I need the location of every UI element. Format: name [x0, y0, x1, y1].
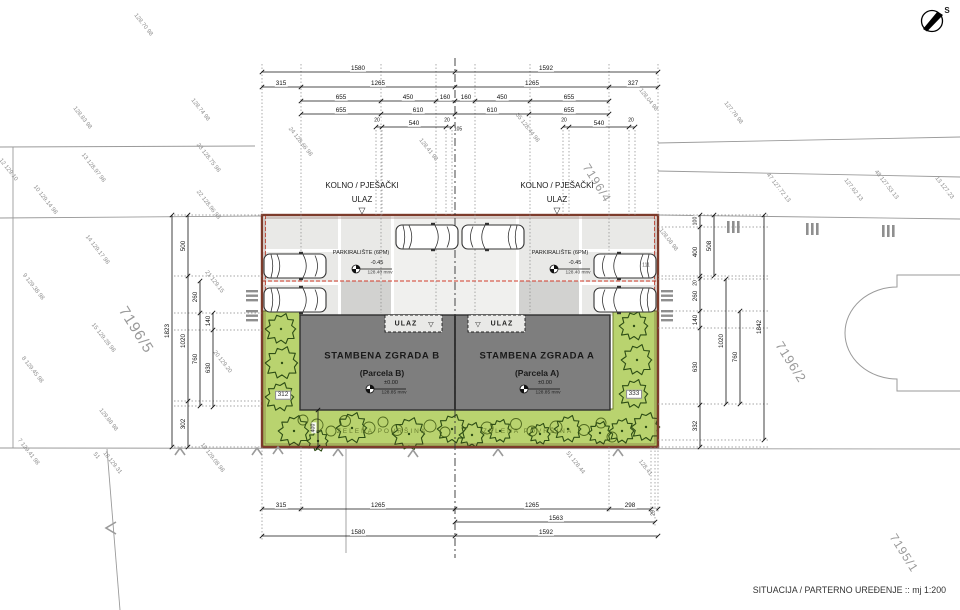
car-icon — [594, 252, 656, 280]
parking-elevation-a: -0.45 — [569, 261, 582, 267]
building-b-name: STAMBENA ZGRADA B — [324, 351, 439, 361]
drawing-title: SITUACIJA / PARTERNO UREĐENJE :: mj 1:20… — [753, 585, 946, 595]
chevron-marks — [106, 447, 623, 534]
parking-elevation-b: -0.45 — [371, 261, 384, 267]
north-label: S — [944, 7, 949, 15]
parking-label-b: PARKIRALIŠTE (6PM) — [333, 251, 389, 257]
building-a-name: STAMBENA ZGRADA A — [479, 351, 594, 361]
car-icon — [396, 223, 458, 251]
car-icon — [264, 252, 326, 280]
entrance-label-a-line1: KOLNO / PJEŠAČKI — [520, 182, 593, 190]
parking-elevation-abs-b: 128.40 mnv — [367, 272, 392, 277]
parking-label-a: PARKIRALIŠTE (6PM) — [532, 251, 588, 257]
site-plan-drawing — [0, 0, 960, 610]
entrance-label-b-line1: KOLNO / PJEŠAČKI — [325, 182, 398, 190]
car-icon — [264, 286, 326, 314]
building-b-entrance-label: ULAZ — [395, 321, 418, 328]
building-a-parcel: (Parcela A) — [515, 369, 559, 378]
entrance-label-b-line2: ULAZ — [352, 196, 372, 204]
entrance-label-a-line2: ULAZ — [547, 196, 567, 204]
building-a-elevation: ±0.00 — [538, 381, 552, 387]
north-arrow-icon — [922, 11, 944, 32]
car-icon — [594, 286, 656, 314]
site-plan-canvas: 1580159231512651265327655450160160450655… — [0, 0, 960, 610]
parking-elevation-abs-a: 128.40 mnv — [565, 272, 590, 277]
building-b-elevation: ±0.00 — [384, 381, 398, 387]
building-b-elevation-abs: 128.85 mnv — [381, 392, 406, 397]
building-a-entrance-label: ULAZ — [491, 321, 514, 328]
building-a-elevation-abs: 128.85 mnv — [535, 392, 560, 397]
building-b-parcel: (Parcela B) — [360, 369, 404, 378]
car-icon — [462, 223, 524, 251]
